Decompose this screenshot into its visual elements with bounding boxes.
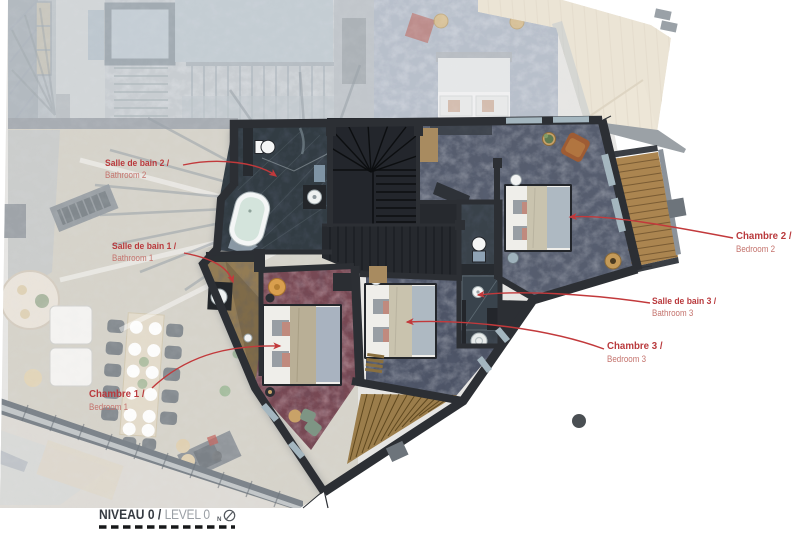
svg-text:N: N — [217, 516, 222, 523]
